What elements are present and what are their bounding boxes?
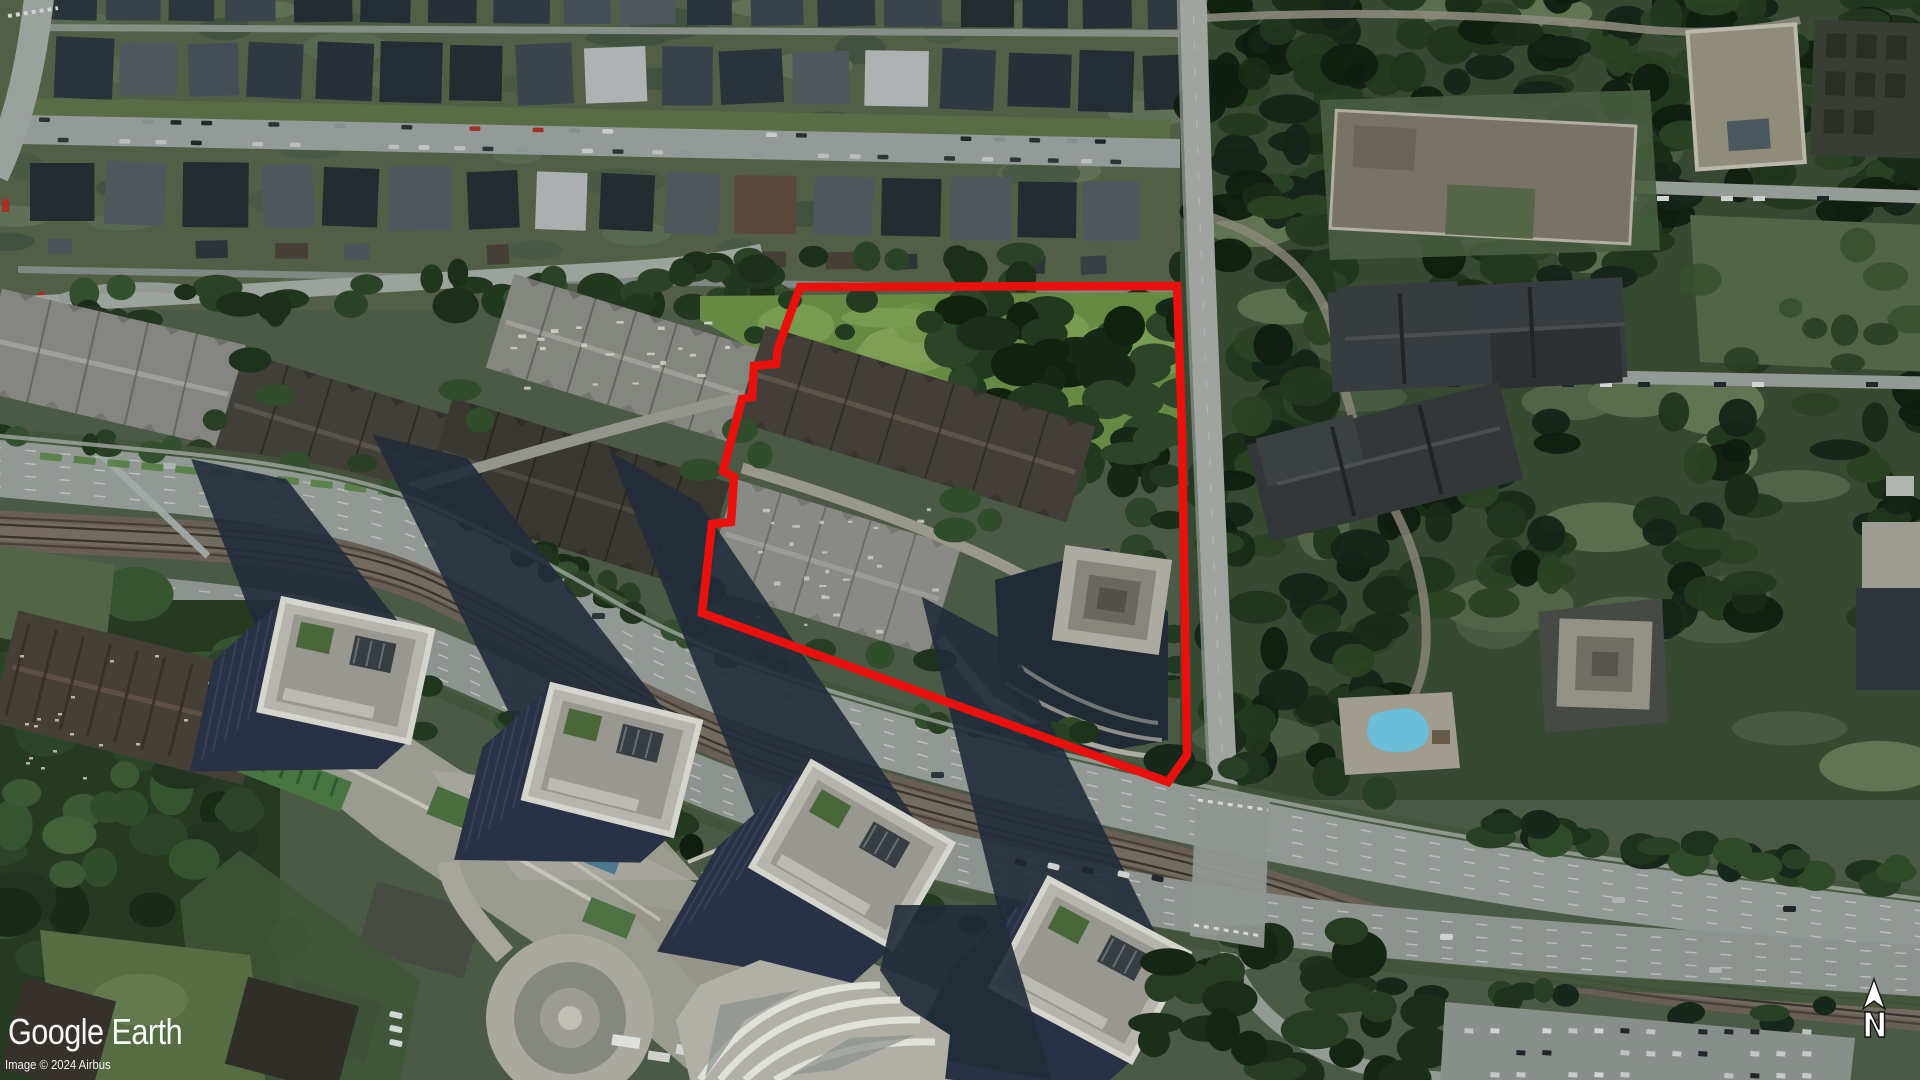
svg-text:Image © 2024 Airbus: Image © 2024 Airbus (5, 1057, 111, 1072)
svg-text:Google Earth: Google Earth (8, 1013, 182, 1053)
